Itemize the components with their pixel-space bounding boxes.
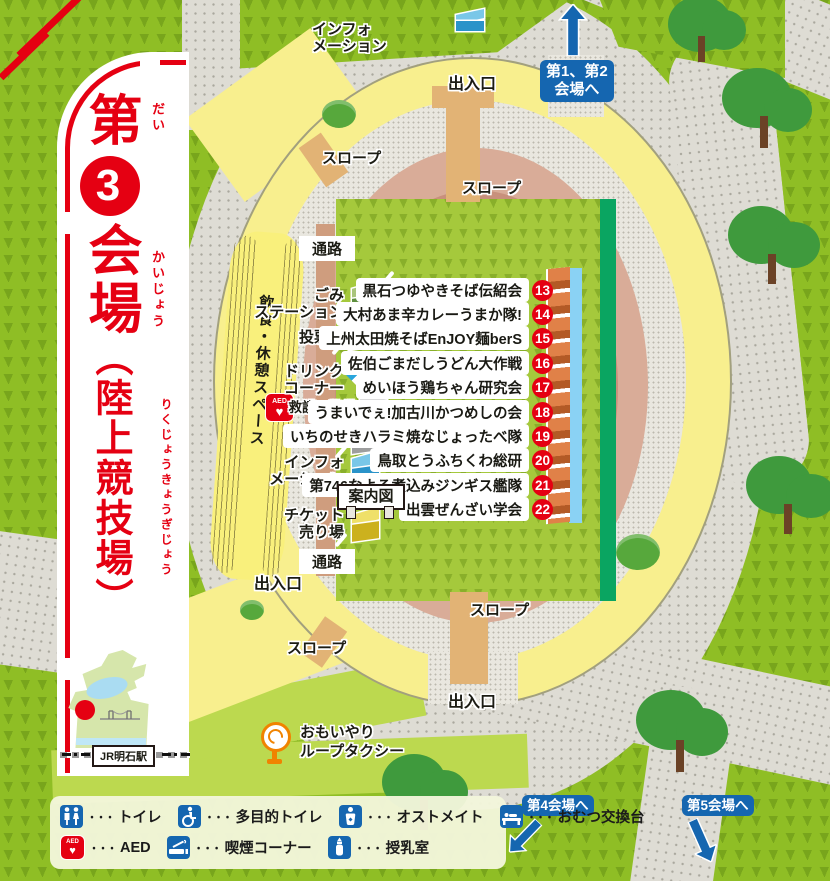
booth-number-badge: 14 [532,304,553,325]
bush [616,534,660,570]
smoking-area-icon [167,836,190,859]
booth-row: うまいでぇ!加古川かつめしの会18 [308,400,553,424]
booth-number-badge: 19 [532,426,553,447]
venue-number-badge: 3 [80,156,140,216]
booth-name: うまいでぇ!加古川かつめしの会 [308,400,529,424]
facility-label-ticket-booth: チケット売り場 [234,507,344,541]
booth-number-badge: 15 [532,328,553,349]
ostomate-icon [339,805,362,828]
guide-sign-leg [346,506,356,519]
booth-number-badge: 17 [532,377,553,398]
ticket-booth-tent-icon [352,508,379,542]
booth-number-badge: 18 [532,402,553,423]
booth-name: いちのせきハラミ焼なじょったべ隊 [283,424,529,448]
legend-panel: ・・・ トイレ ・・・ 多目的トイレ ・・・ オストメイト ・・・ おむつ交換台… [50,796,506,869]
booth-row: 大村あま辛カレーうまか隊!14 [336,302,553,326]
tree [724,198,824,290]
area-minimap: JR明石駅 [66,648,184,766]
legend-item-toilet: ・・・ トイレ [60,805,162,828]
arrow-up-icon [558,4,588,56]
guide-sign-leg [384,506,394,519]
booth-row: 出雲ぜんざい学会22 [399,497,553,521]
loop-taxi-label: おもいやりループタクシー [300,723,404,761]
title-prefix: 第 [80,92,140,150]
booth-number-badge: 16 [532,353,553,374]
booth-number-badge: 13 [532,280,553,301]
booth-row: めいほう鶏ちゃん研究会17 [356,375,554,399]
legend-item-diaper-changing: ・・・ おむつ交換台 [500,805,645,828]
booth-name: 大村あま辛カレーうまか隊! [336,302,529,326]
booth-number-badge: 20 [532,450,553,471]
diaper-changing-icon [500,805,523,828]
booth-name: 上州太田焼そばEnJOY麺berS [319,326,529,350]
tree [742,448,830,540]
railway-dashdot [62,753,92,756]
title-paren: （陸上競技場） [89,338,131,618]
booth-row: 黒石つゆやきそば伝紹会13 [356,278,554,302]
page-title: 第3会場（陸上競技場） [80,92,140,618]
booth-row: 上州太田焼そばEnJOY麺berS15 [319,326,553,350]
queue-lane-strip [569,268,582,523]
booth-name: 鳥取とうふちくわ総研 [370,448,529,472]
infield-green-strip [600,199,616,601]
facility-label-drink-corner: ドリンクコーナー [234,363,344,397]
tree [716,62,816,154]
slope-label-1: スロープ [322,150,381,167]
furigana-dai: だい [148,102,167,134]
heart-icon: ♥ [69,846,76,856]
booth-number-badge: 21 [532,475,553,496]
slope-label-3: スロープ [470,602,529,619]
information-booth-icon [456,12,484,32]
venue-3-map: 飲食・休憩スペース AED ♥ 出入口 出入口 出入口 スロープ スロープ スロ… [0,0,830,881]
loop-taxi-stop-icon [258,722,292,764]
sea-strip [76,738,146,745]
information-label-top: インフォメーション [312,21,387,55]
legend-item-nursing-room: ・・・ 授乳室 [328,836,430,859]
bush [322,100,356,128]
toilet-icon [60,805,83,828]
city-outline [66,648,184,748]
accessible-toilet-icon [178,805,201,828]
lane-tick [140,54,160,68]
nursing-room-icon [328,836,351,859]
lane-tick [59,212,73,234]
entrance-label-left: 出入口 [254,576,302,593]
booth-name: 出雲ぜんざい学会 [399,497,529,521]
tree [660,0,750,68]
title-middle: 会場 [80,222,140,338]
nav-to-venue-5[interactable]: 第5会場へ [682,795,754,816]
railway-dashdot [162,753,192,756]
nav-to-venues-1-2[interactable]: 第1、第2 会場へ [540,60,614,102]
booth-row: 鳥取とうふちくわ総研20 [370,448,553,472]
furigana-rikujou: りくじょうきょうぎじょう [158,398,175,578]
passage-label-bottom: 通路 [299,549,355,574]
booth-row: いちのせきハラミ焼なじょったべ隊19 [283,424,553,448]
entrance-label-top: 出入口 [448,76,496,93]
legend-row-2: AED♥ ・・・ AED ・・・ 喫煙コーナー ・・・ 授乳室 [60,835,496,860]
booth-row: 佐伯ごまだしうどん大作戦16 [341,351,553,375]
passage-label-top: 通路 [299,236,355,261]
booth-name: 黒石つゆやきそば伝紹会 [356,278,530,302]
tree [630,682,734,778]
legend-item-smoking-area: ・・・ 喫煙コーナー [167,836,312,859]
station-label: JR明石駅 [92,745,155,767]
legend-row-1: ・・・ トイレ ・・・ 多目的トイレ ・・・ オストメイト ・・・ おむつ交換台 [60,805,496,828]
furigana-kaijou: かいじょう [148,250,167,330]
entrance-label-bottom: 出入口 [448,694,496,711]
bush [240,600,264,620]
bridge-icon [98,708,142,721]
facility-label-garbage-station: ごみステーション [234,287,344,321]
slope-label-4: スロープ [287,640,346,657]
booth-name: 佐伯ごまだしうどん大作戦 [341,351,529,375]
booth-number-badge: 22 [532,499,553,520]
aed-icon: AED♥ [60,835,85,860]
booth-name: めいほう鶏ちゃん研究会 [356,375,530,399]
slope-label-2: スロープ [462,180,521,197]
legend-item-ostomate: ・・・ オストメイト [339,805,484,828]
venue-location-dot [75,700,95,720]
legend-item-accessible-toilet: ・・・ 多目的トイレ [178,805,323,828]
legend-item-aed: AED♥ ・・・ AED [60,835,151,860]
